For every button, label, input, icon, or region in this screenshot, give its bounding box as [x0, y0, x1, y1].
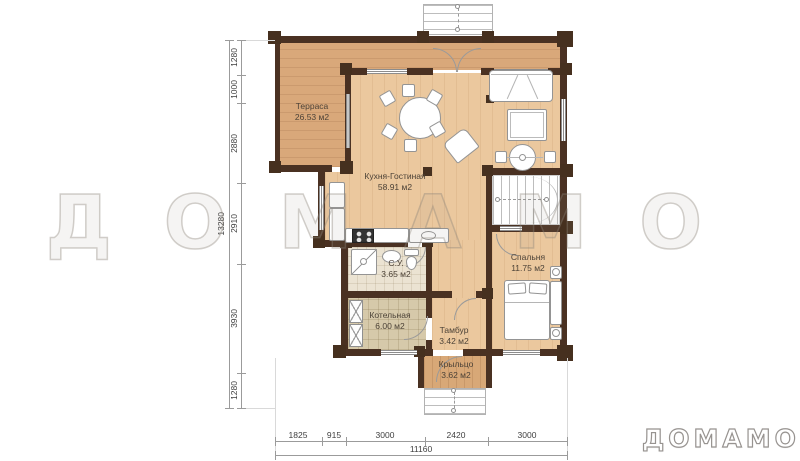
room-label-vestibule: Тамбур 3.42 м2	[439, 325, 468, 347]
fridge	[329, 182, 345, 208]
dimension-tick	[567, 437, 568, 446]
stair-route-node	[495, 197, 500, 202]
wall-exterior-bottom	[463, 349, 503, 356]
steps-route-node	[455, 4, 460, 9]
room-label-terrace: Терраса 26.53 м2	[295, 101, 329, 123]
wall-left-service	[341, 240, 348, 356]
room-label-porch: Крыльцо 3.62 м2	[439, 359, 474, 381]
log-end-block	[340, 161, 353, 174]
dim-left-1: 1000	[227, 75, 240, 103]
stool	[544, 151, 556, 163]
steps-direction-line	[458, 8, 459, 28]
window	[561, 99, 566, 141]
log-end-block	[557, 345, 573, 361]
dim-value: 3930	[229, 309, 239, 328]
room-area: 11.75 м2	[511, 263, 545, 274]
extension-line	[246, 40, 275, 41]
window	[503, 350, 540, 355]
bedside-lamp	[552, 268, 560, 276]
dim-bottom-1: 915	[327, 430, 341, 440]
wall-corridor-left	[426, 240, 432, 318]
room-area: 3.42 м2	[439, 336, 468, 347]
dim-left-2: 2880	[227, 103, 240, 183]
log-end-block	[313, 236, 325, 248]
dining-chair	[402, 84, 415, 97]
room-name: Котельная	[369, 310, 410, 321]
kitchen-counter-left	[329, 208, 345, 241]
room-area: 3.62 м2	[439, 370, 474, 381]
sofa-back-line	[491, 74, 551, 75]
dim-left-4: 3930	[227, 264, 240, 373]
log-end-block	[560, 221, 573, 234]
dim-value: 1280	[229, 381, 239, 400]
log-end-block	[417, 31, 429, 43]
log-end-block	[340, 63, 352, 75]
fireplace-center	[519, 154, 526, 161]
log-end-block	[268, 31, 281, 44]
dim-value: 1280	[229, 48, 239, 67]
dimension-tick	[567, 451, 568, 460]
log-end-block	[333, 345, 346, 358]
dimension-tick	[237, 408, 246, 409]
room-area: 26.53 м2	[295, 112, 329, 123]
brand-logo: ДОМАМО	[642, 424, 794, 453]
log-end-block	[482, 31, 494, 43]
boiler-unit	[349, 324, 363, 347]
extension-line	[246, 408, 275, 409]
wardrobe	[550, 281, 562, 325]
dimension-tick	[275, 437, 276, 446]
dim-value: 2910	[229, 214, 239, 233]
shower-drain	[360, 258, 367, 265]
dimension-line-bottom-segments	[275, 441, 567, 442]
stove	[352, 229, 374, 243]
corridor-floor	[426, 240, 486, 298]
steps-route-node	[455, 27, 460, 32]
dining-chair	[404, 139, 417, 152]
log-end-block	[560, 164, 573, 177]
window	[367, 69, 407, 74]
dimension-line-bottom-total	[275, 455, 567, 456]
window	[500, 226, 522, 231]
dimension-tick	[322, 437, 323, 446]
porch-steps-direction-line	[454, 392, 455, 408]
wall-porch-right	[486, 356, 492, 388]
toilet-tank	[404, 249, 419, 256]
room-name: Спальня	[511, 252, 545, 263]
dim-left-3: 2910	[227, 183, 240, 264]
room-name: Крыльцо	[439, 359, 474, 370]
room-label-boiler: Котельная 6.00 м2	[369, 310, 410, 332]
wall-bathroom-boiler	[341, 291, 432, 298]
stair-direction-line	[498, 199, 546, 200]
room-name: Терраса	[295, 101, 329, 112]
dim-bottom-0: 1825	[289, 430, 308, 440]
dimension-tick	[488, 437, 489, 446]
wall-terrace-left	[275, 36, 280, 172]
pillow	[529, 282, 548, 294]
dim-value: 13280	[216, 212, 226, 236]
dim-left-5: 1280	[227, 373, 240, 408]
blanket-line	[505, 302, 549, 303]
wall-corridor-vestibule	[432, 291, 452, 298]
porch-route-node	[451, 388, 456, 393]
stair-route-node	[544, 197, 549, 202]
room-area: 58.91 м2	[364, 182, 425, 193]
log-end-block	[482, 288, 493, 299]
log-end-block	[269, 161, 281, 173]
log-end-block	[560, 63, 572, 75]
window	[346, 94, 350, 148]
room-label-bedroom: Спальня 11.75 м2	[511, 252, 545, 274]
pillow	[508, 282, 527, 294]
porch-route-node	[451, 408, 456, 413]
window	[381, 350, 417, 355]
dim-left-total: 13280	[214, 40, 227, 408]
window	[319, 186, 324, 230]
room-name: С.У.	[381, 258, 410, 269]
dim-left-0: 1280	[227, 40, 240, 75]
dimension-line-left-segments	[241, 40, 242, 408]
dimension-tick	[275, 451, 276, 460]
room-name: Кухня-Гостиная	[364, 171, 425, 182]
room-area: 6.00 м2	[369, 321, 410, 332]
dim-bottom-3: 2420	[447, 430, 466, 440]
room-area: 3.65 м2	[381, 269, 410, 280]
dim-value: 1000	[229, 80, 239, 99]
dim-bottom-total: 11160	[410, 444, 432, 454]
room-label-kitchen-living: Кухня-Гостиная 58.91 м2	[364, 171, 425, 193]
dim-bottom-2: 3000	[376, 430, 395, 440]
coffee-table-inner	[510, 112, 544, 138]
dim-bottom-4: 3000	[518, 430, 537, 440]
kitchen-sink	[421, 231, 436, 240]
bedside-lamp	[552, 329, 560, 337]
log-end-block	[557, 31, 573, 47]
wall-living-top	[407, 68, 433, 75]
dim-value: 2880	[229, 134, 239, 153]
floor-plan-canvas: Терраса 26.53 м2 Кухня-Гостиная 58.91 м2…	[0, 0, 800, 461]
room-label-bathroom: С.У. 3.65 м2	[381, 258, 410, 280]
wall-stairs-bedroom-left	[486, 168, 492, 356]
dimension-tick	[346, 437, 347, 446]
room-name: Тамбур	[439, 325, 468, 336]
boiler-unit	[349, 300, 363, 323]
log-end-block	[482, 165, 493, 176]
stool	[495, 151, 507, 163]
wall-porch-left	[418, 356, 424, 388]
wall-vestibule-left	[426, 340, 432, 356]
dimension-tick	[225, 408, 234, 409]
